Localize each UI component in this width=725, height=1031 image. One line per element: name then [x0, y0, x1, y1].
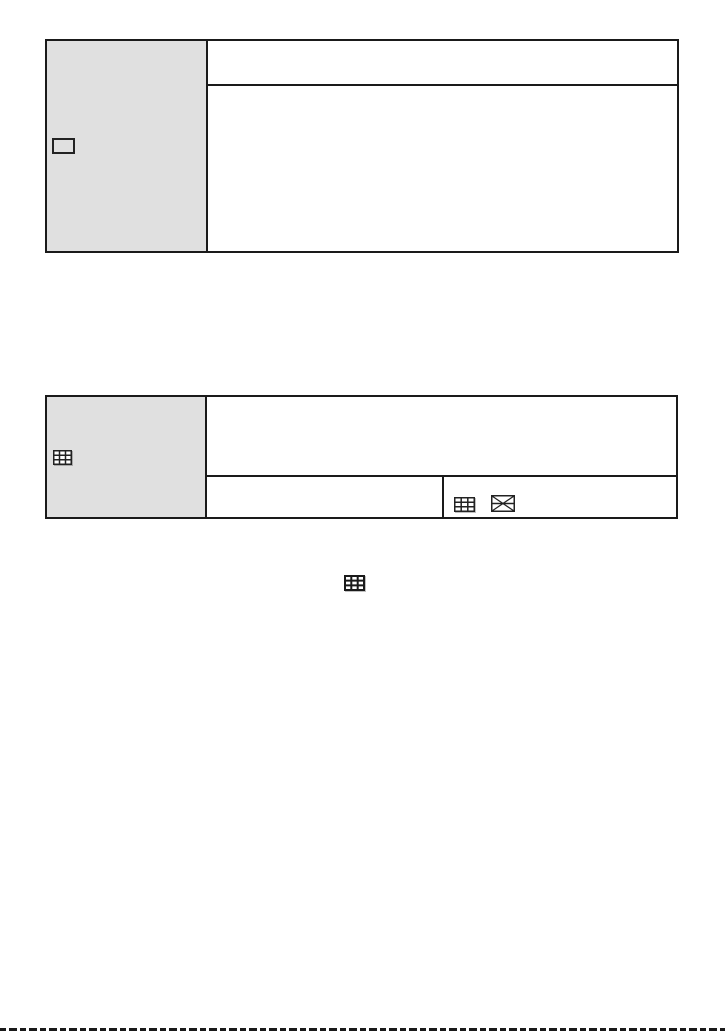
- table-1-header-cell: [47, 41, 208, 251]
- table-2-row-2-cell-1: [207, 477, 444, 517]
- table-1-row-2: [208, 86, 677, 251]
- table-2-row-2-cell-2: [444, 477, 676, 517]
- table-1-body: [208, 41, 677, 251]
- rectangle-outline-icon: [52, 138, 75, 154]
- grid-3x3-bold-icon: [344, 575, 365, 591]
- grid-3x3-icon: [454, 497, 475, 512]
- table-2-row-2: [207, 477, 676, 517]
- diagonal-grid-icon: [491, 495, 515, 512]
- table-2-body: [207, 397, 676, 517]
- table-2-header-cell: [47, 397, 207, 517]
- table-2-row-1: [207, 397, 676, 477]
- grid-3x3-icon: [53, 450, 72, 465]
- table-1: [45, 39, 679, 253]
- table-1-row-1: [208, 41, 677, 86]
- table-2: [45, 395, 678, 519]
- manual-page: [0, 0, 725, 1031]
